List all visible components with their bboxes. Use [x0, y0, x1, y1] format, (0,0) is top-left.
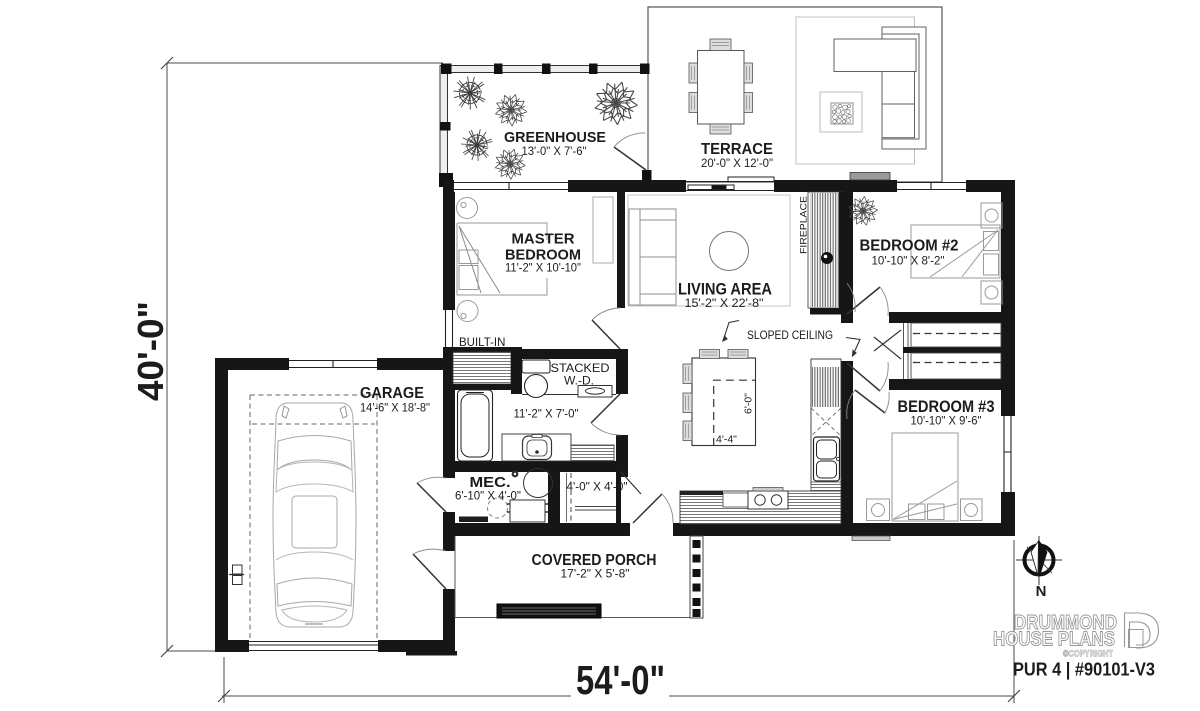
- svg-text:10'-10" X 8'-2": 10'-10" X 8'-2": [872, 256, 945, 268]
- svg-text:14'-6" X 18'-8": 14'-6" X 18'-8": [360, 403, 430, 415]
- svg-text:4'-0" X 4'-0": 4'-0" X 4'-0": [567, 482, 628, 494]
- svg-text:BEDROOM #2: BEDROOM #2: [860, 238, 959, 255]
- svg-text:N: N: [1036, 583, 1047, 600]
- svg-text:W.-D.: W.-D.: [564, 376, 594, 388]
- svg-text:4'-4": 4'-4": [716, 434, 737, 446]
- svg-text:SLOPED CEILING: SLOPED CEILING: [747, 328, 833, 342]
- svg-text:13'-0" X 7'-6": 13'-0" X 7'-6": [522, 146, 587, 158]
- svg-text:6'-0": 6'-0": [743, 393, 755, 414]
- svg-text:10'-10" X 9'-6": 10'-10" X 9'-6": [911, 416, 982, 428]
- svg-text:FIREPLACE: FIREPLACE: [799, 196, 810, 254]
- svg-text:11'-2" X 10'-10": 11'-2" X 10'-10": [505, 263, 581, 275]
- svg-text:GARAGE: GARAGE: [360, 385, 424, 402]
- svg-text:HOUSE PLANS: HOUSE PLANS: [993, 628, 1115, 651]
- svg-text:20'-0" X 12'-0": 20'-0" X 12'-0": [701, 158, 773, 170]
- svg-text:11'-2" X 7'-0": 11'-2" X 7'-0": [514, 409, 579, 421]
- svg-text:BUILT-IN: BUILT-IN: [459, 337, 505, 349]
- svg-text:COVERED PORCH: COVERED PORCH: [532, 552, 657, 569]
- svg-text:PUR 4 | #90101-V3: PUR 4 | #90101-V3: [1013, 659, 1155, 680]
- svg-text:STACKED: STACKED: [551, 363, 610, 375]
- svg-text:TERRACE: TERRACE: [701, 141, 773, 158]
- svg-text:©COPYRIGHT: ©COPYRIGHT: [1063, 649, 1113, 659]
- svg-text:MASTER: MASTER: [512, 231, 575, 248]
- svg-text:BEDROOM: BEDROOM: [505, 247, 581, 264]
- svg-text:15'-2" X 22'-8": 15'-2" X 22'-8": [685, 298, 764, 310]
- svg-text:BEDROOM #3: BEDROOM #3: [898, 398, 995, 416]
- svg-text:MEC.: MEC.: [470, 475, 511, 491]
- svg-text:17'-2" X 5'-8": 17'-2" X 5'-8": [561, 569, 630, 581]
- svg-text:54'-0": 54'-0": [576, 657, 665, 703]
- svg-text:LIVING AREA: LIVING AREA: [678, 281, 772, 299]
- svg-text:GREENHOUSE: GREENHOUSE: [504, 129, 606, 146]
- svg-text:6'-10" X 4'-0": 6'-10" X 4'-0": [455, 491, 521, 503]
- svg-text:40'-0": 40'-0": [130, 301, 171, 401]
